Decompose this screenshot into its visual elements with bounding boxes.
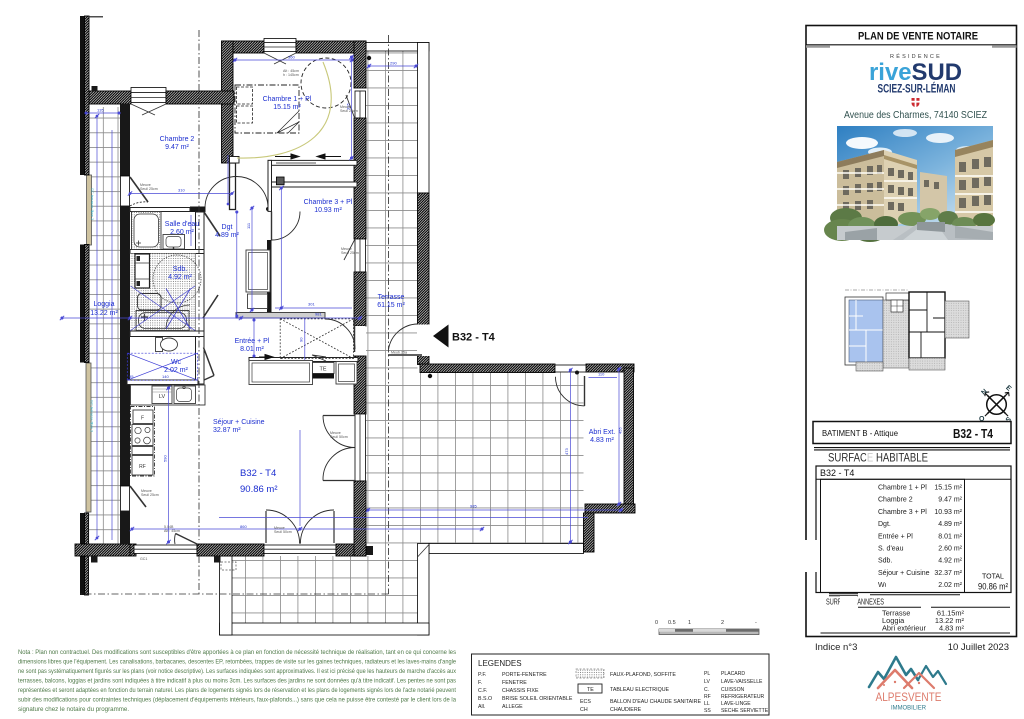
svg-text:360: 360: [288, 55, 295, 60]
svg-text:Abri Ext.: Abri Ext.: [589, 429, 616, 436]
svg-text:Séjour + Cuisine: Séjour + Cuisine: [213, 419, 265, 426]
svg-text:SS: SS: [704, 708, 711, 714]
svg-text:TE: TE: [587, 687, 594, 693]
svg-text:Seuil 50cm: Seuil 50cm: [330, 435, 348, 439]
svg-text:110: 110: [598, 372, 605, 377]
svg-text:FAUX-PLAFOND, SOFFITE: FAUX-PLAFOND, SOFFITE: [610, 672, 676, 678]
svg-text:TOTAL: TOTAL: [982, 574, 1004, 581]
svg-text:LV: LV: [704, 679, 710, 685]
svg-text:GC1: GC1: [140, 557, 147, 561]
svg-text:4.83 m²: 4.83 m²: [590, 437, 614, 444]
svg-text:Sdb.: Sdb.: [173, 266, 187, 273]
svg-text:REFRIGERATEUR: REFRIGERATEUR: [721, 694, 765, 700]
svg-text:8.01 m²: 8.01 m²: [938, 533, 962, 540]
svg-text:Chambre 3 + Pl: Chambre 3 + Pl: [304, 199, 353, 206]
svg-text:Chambre 3 + Pl: Chambre 3 + Pl: [878, 509, 927, 516]
svg-text:Loggia: Loggia: [93, 301, 114, 308]
svg-text:ALLEGE: ALLEGE: [502, 704, 523, 710]
svg-text:FENETRE: FENETRE: [502, 680, 527, 686]
svg-text:4.92 m²: 4.92 m²: [938, 558, 962, 565]
svg-text:PORTE-FENETRE: PORTE-FENETRE: [502, 672, 547, 678]
svg-text:Meub.25a: Meub.25a: [391, 351, 407, 355]
svg-text:2.60 m²: 2.60 m²: [170, 229, 194, 236]
svg-text:135: 135: [97, 108, 104, 113]
svg-text:Avenue des Charmes, 74140 SCIE: Avenue des Charmes, 74140 SCIEZ: [844, 110, 987, 121]
svg-text:All.: All.: [478, 704, 485, 710]
svg-text:Chambre 1 + Pl: Chambre 1 + Pl: [263, 96, 312, 103]
svg-text:F.: F.: [478, 680, 482, 686]
svg-text:B32 - T4: B32 - T4: [452, 332, 496, 344]
svg-text:0.5: 0.5: [668, 620, 676, 626]
svg-text:4.89 m²: 4.89 m²: [938, 521, 962, 528]
svg-text:SCIEZ-SUR-LÉMAN: SCIEZ-SUR-LÉMAN: [878, 83, 956, 96]
svg-text:2.02 m²: 2.02 m²: [164, 367, 188, 374]
svg-text:0: 0: [655, 620, 658, 626]
svg-text:111: 111: [246, 222, 251, 229]
svg-text:Séjour + Cuisine: Séjour + Cuisine: [878, 570, 930, 577]
svg-text:Sdb.: Sdb.: [878, 558, 892, 565]
svg-text:dimensions libres que l'équipe: dimensions libres que l'équipement. Les …: [18, 659, 457, 666]
svg-text:IMMOBILIER: IMMOBILIER: [891, 706, 927, 712]
svg-text:Seuil 25cm: Seuil 25cm: [341, 251, 359, 255]
svg-text:CUISSON: CUISSON: [721, 687, 745, 693]
svg-text:P.F.: P.F.: [478, 672, 486, 678]
svg-text:310: 310: [178, 188, 185, 193]
svg-text:LAVE-LINGE: LAVE-LINGE: [721, 701, 751, 707]
svg-text:CHAUDIERE: CHAUDIERE: [610, 707, 642, 713]
svg-text:1: 1: [688, 620, 691, 626]
svg-text:B.S.O: B.S.O: [478, 696, 492, 702]
svg-text:Entrée + Pl: Entrée + Pl: [235, 338, 270, 345]
svg-text:860: 860: [240, 524, 247, 529]
svg-text:Chambre 1 + Pl: Chambre 1 + Pl: [878, 485, 927, 492]
svg-text:Terrasse: Terrasse: [378, 294, 405, 301]
svg-text:301: 301: [308, 302, 315, 307]
svg-text:BALLON D'EAU CHAUDE SANITAIRE: BALLON D'EAU CHAUDE SANITAIRE: [610, 699, 701, 705]
svg-text:-: -: [755, 620, 757, 626]
svg-text:GC terrasse fibre 2: GC terrasse fibre 2: [90, 400, 94, 432]
svg-text:subir des modifications pour c: subir des modifications pour contraintes…: [18, 697, 457, 704]
svg-text:95: 95: [129, 374, 134, 379]
svg-text:représentées et seront adaptée: représentées et seront adaptées en fonct…: [18, 687, 456, 694]
svg-text:Salle d'eau: Salle d'eau: [165, 221, 200, 228]
svg-text:32.87 m²: 32.87 m²: [213, 427, 241, 434]
svg-text:Seuil 25cm: Seuil 25cm: [340, 109, 358, 113]
svg-text:8.01 m²: 8.01 m²: [240, 346, 264, 353]
svg-text:61.15 m²: 61.15 m²: [377, 302, 405, 309]
svg-text:Wc: Wc: [171, 359, 182, 366]
svg-text:riveSUD: riveSUD: [869, 59, 962, 86]
svg-text:15.15 m²: 15.15 m²: [273, 104, 301, 111]
svg-text:2: 2: [721, 620, 724, 626]
svg-text:15.15 m²: 15.15 m²: [934, 485, 962, 492]
svg-text:10.93 m²: 10.93 m²: [314, 207, 342, 214]
svg-text:Entrée + Pl: Entrée + Pl: [878, 533, 913, 540]
svg-text:Chambre 2: Chambre 2: [878, 497, 913, 504]
svg-text:B32 - T4: B32 - T4: [240, 468, 276, 479]
svg-text:32.37 m²: 32.37 m²: [934, 570, 962, 577]
svg-text:Chambre 2: Chambre 2: [160, 136, 195, 143]
svg-text:B32 - T4: B32 - T4: [820, 468, 854, 478]
svg-text:290: 290: [390, 61, 397, 66]
svg-text:473: 473: [564, 448, 569, 455]
svg-text:LAVE-VAISSELLE: LAVE-VAISSELLE: [721, 679, 763, 685]
svg-text:10 Juillet 2023: 10 Juillet 2023: [948, 642, 1009, 653]
svg-text:2.60 m²: 2.60 m²: [938, 546, 962, 553]
svg-text:90: 90: [299, 337, 304, 342]
svg-text:SECHE SERVIETTE: SECHE SERVIETTE: [721, 708, 769, 714]
svg-text:LEGENDES: LEGENDES: [478, 659, 522, 668]
svg-text:RF: RF: [139, 464, 146, 470]
svg-text:Alt : 45cm: Alt : 45cm: [164, 529, 180, 533]
svg-text:Abri extérieur: Abri extérieur: [882, 624, 926, 633]
svg-text:BATIMENT B - Attique: BATIMENT B - Attique: [822, 428, 898, 438]
svg-text:LL: LL: [704, 701, 710, 707]
svg-text:590: 590: [163, 455, 168, 462]
svg-text:Seuil 25cm: Seuil 25cm: [141, 493, 159, 497]
svg-text:90.86 m²: 90.86 m²: [978, 582, 1008, 593]
svg-text:981: 981: [315, 312, 322, 317]
svg-text:Seuil 25cm: Seuil 25cm: [140, 187, 158, 191]
svg-text:TE: TE: [319, 367, 326, 373]
svg-text:ne sont pas systématiquement f: ne sont pas systématiquement figurés sur…: [18, 668, 457, 675]
svg-text:ALPESVENTE: ALPESVENTE: [876, 692, 942, 704]
svg-text:S. d'eau: S. d'eau: [878, 546, 904, 553]
svg-text:PLAN DE VENTE NOTAIRE: PLAN DE VENTE NOTAIRE: [858, 31, 978, 43]
svg-text:4.83 m²: 4.83 m²: [939, 624, 965, 633]
svg-text:9.47 m²: 9.47 m²: [165, 144, 189, 151]
svg-text:90.86 m²: 90.86 m²: [240, 484, 278, 495]
svg-text:terrasses, balcons, loggias et: terrasses, balcons, loggias et jardins s…: [18, 678, 456, 685]
svg-text:CH: CH: [580, 707, 588, 713]
svg-text:SURFACE HABITABLE: SURFACE HABITABLE: [828, 451, 928, 465]
svg-text:10.93 m²: 10.93 m²: [934, 509, 962, 516]
svg-text:140: 140: [162, 374, 169, 379]
svg-text:4.89 m²: 4.89 m²: [215, 232, 239, 239]
svg-text:PLACARD: PLACARD: [721, 671, 745, 677]
svg-text:C.F.: C.F.: [478, 688, 487, 694]
svg-text:PL: PL: [704, 671, 710, 677]
svg-text:RF: RF: [704, 694, 711, 700]
svg-text:Nota : Plan non contractuel. D: Nota : Plan non contractuel. Des modific…: [18, 649, 456, 656]
svg-text:CHASSIS FIXE: CHASSIS FIXE: [502, 688, 539, 694]
svg-text:Seuil 50cm: Seuil 50cm: [274, 530, 292, 534]
svg-text:13.22 m²: 13.22 m²: [90, 310, 118, 317]
svg-text:h : 145cm: h : 145cm: [283, 73, 299, 77]
svg-text:BRISE SOLEIL ORIENTABLE: BRISE SOLEIL ORIENTABLE: [502, 696, 573, 702]
svg-text:GC terrasse fibre 2: GC terrasse fibre 2: [90, 188, 94, 220]
svg-text:2.02 m²: 2.02 m²: [938, 582, 962, 589]
svg-text:985: 985: [470, 504, 477, 509]
svg-text:ECS: ECS: [580, 699, 591, 705]
svg-text:B32 - T4: B32 - T4: [953, 427, 993, 441]
svg-text:4.92 m²: 4.92 m²: [168, 274, 192, 281]
svg-text:TABLEAU ELECTRIQUE: TABLEAU ELECTRIQUE: [610, 687, 670, 693]
svg-text:signature chez le notaire du p: signature chez le notaire du programme.: [18, 706, 129, 713]
svg-text:C.: C.: [704, 687, 709, 693]
svg-text:455: 455: [618, 427, 623, 434]
svg-text:LV: LV: [159, 394, 166, 400]
svg-text:Dgt: Dgt: [222, 224, 233, 231]
svg-text:F: F: [141, 416, 144, 422]
svg-text:9.47 m²: 9.47 m²: [938, 497, 962, 504]
svg-text:Indice n°3: Indice n°3: [815, 642, 857, 653]
svg-text:Dgt.: Dgt.: [878, 521, 891, 528]
